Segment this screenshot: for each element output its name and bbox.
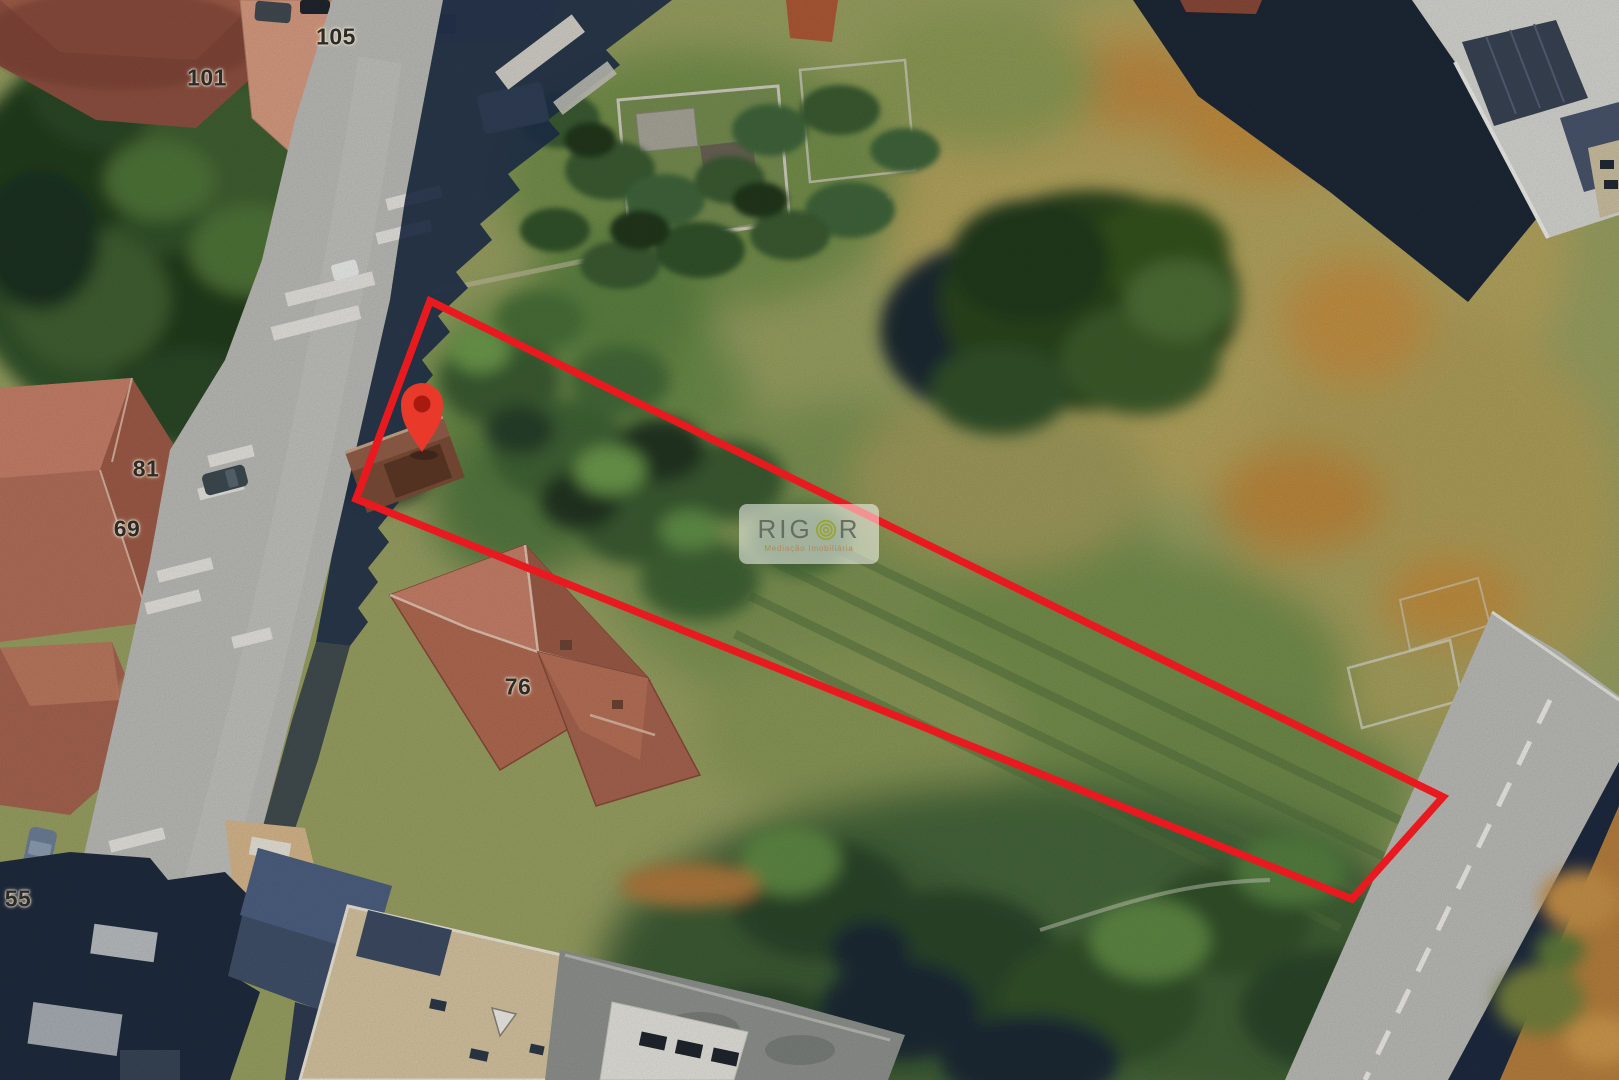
watermark-brand: RIG R <box>757 516 860 542</box>
pin-shadow <box>410 450 438 460</box>
house-number-label: 81 <box>133 456 160 483</box>
house-number-label: 101 <box>187 65 227 92</box>
house-number-label: 69 <box>114 516 141 543</box>
map-pin-inner-circle <box>414 396 431 413</box>
house-number-label: 105 <box>316 24 356 51</box>
watermark-brand-suffix: R <box>839 516 861 542</box>
satellite-map-view: 105 101 81 69 76 55 RIG R Mediação Imobi… <box>0 0 1619 1080</box>
watermark: RIG R Mediação Imobiliária <box>739 504 879 564</box>
house-number-label: 55 <box>5 886 32 913</box>
house-number-label: 76 <box>505 674 532 701</box>
watermark-tagline: Mediação Imobiliária <box>764 544 853 553</box>
watermark-brand-prefix: RIG <box>757 516 812 542</box>
watermark-logo-o-icon <box>815 519 837 541</box>
